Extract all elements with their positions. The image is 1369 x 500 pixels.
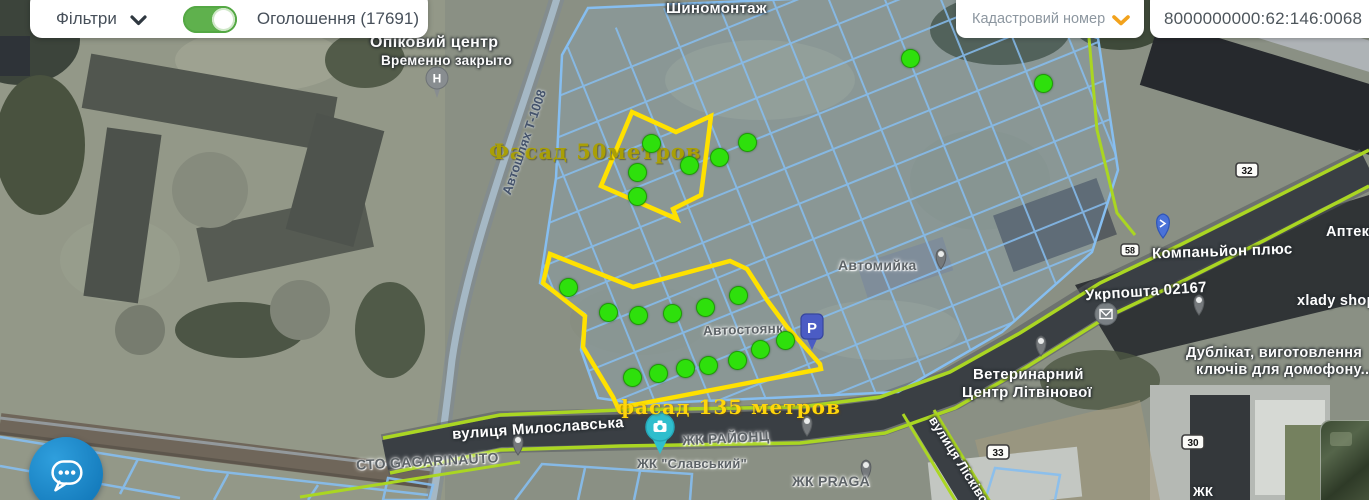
cadastral-number-field[interactable]: 8000000000:62:146:0068	[1150, 0, 1369, 38]
label-zhk-slavskyi: ЖК "Славський"	[637, 457, 747, 472]
svg-text:30: 30	[1187, 438, 1199, 449]
road-shield-30: 30	[1182, 435, 1204, 449]
svg-text:33: 33	[992, 448, 1004, 459]
label-tire-service: Шиномонтаж	[666, 0, 767, 17]
filters-button[interactable]: Фільтри	[56, 9, 117, 29]
announcement-marker[interactable]	[680, 156, 699, 175]
announcement-marker[interactable]	[628, 163, 647, 182]
announcement-marker[interactable]	[559, 278, 578, 297]
announcement-marker[interactable]	[1034, 74, 1053, 93]
announcement-marker[interactable]	[628, 187, 647, 206]
announcements-toggle[interactable]	[183, 6, 237, 33]
label-xlady-shop: xlady shop	[1297, 293, 1369, 310]
cadastral-field-label: Кадастровий номер	[972, 11, 1105, 27]
label-zhk-praga: ЖК PRAGA	[792, 473, 870, 489]
cadastral-number-value: 8000000000:62:146:0068	[1164, 9, 1362, 29]
chevron-down-icon[interactable]	[130, 15, 147, 26]
announcement-marker[interactable]	[599, 303, 618, 322]
announcement-marker[interactable]	[738, 133, 757, 152]
announcement-marker[interactable]	[623, 368, 642, 387]
announcement-marker[interactable]	[649, 364, 668, 383]
label-vet-center-2: Центр Літвінової	[962, 384, 1092, 401]
announcement-marker[interactable]	[710, 148, 729, 167]
map-canvas[interactable]: H P	[0, 0, 1369, 500]
filter-bar: Фільтри Оголошення (17691)	[30, 0, 428, 38]
chat-bubble-icon	[43, 451, 89, 497]
mail-pin	[1095, 303, 1117, 325]
label-vet-center-1: Ветеринарний	[973, 366, 1084, 383]
toggle-knob	[212, 8, 235, 31]
label-key-duplicate-1: Дублікат, виготовлення	[1186, 345, 1362, 362]
svg-text:58: 58	[1125, 246, 1135, 256]
road-shield-58: 58	[1121, 244, 1139, 256]
road-shield-33: 33	[987, 445, 1009, 459]
hospital-letter: H	[433, 72, 442, 86]
announcement-marker[interactable]	[676, 359, 695, 378]
announcement-marker[interactable]	[751, 340, 770, 359]
parking-letter: P	[807, 320, 817, 337]
minimap-inset[interactable]	[1320, 420, 1369, 500]
announcement-marker[interactable]	[728, 351, 747, 370]
road-shield-32: 32	[1236, 163, 1258, 177]
announcement-marker[interactable]	[729, 286, 748, 305]
announcement-marker[interactable]	[696, 298, 715, 317]
chevron-down-orange-icon	[1112, 15, 1130, 26]
announcement-marker[interactable]	[629, 306, 648, 325]
announcement-marker[interactable]	[642, 134, 661, 153]
announcements-count-label: Оголошення (17691)	[257, 9, 419, 29]
label-facade-135m: фасад 135 метров	[616, 396, 841, 419]
announcement-marker[interactable]	[901, 49, 920, 68]
label-pharmacy: Аптека	[1326, 224, 1369, 241]
label-zhk-corner: ЖК	[1193, 485, 1213, 500]
announcement-marker[interactable]	[699, 356, 718, 375]
announcement-marker[interactable]	[663, 304, 682, 323]
label-key-duplicate-2: ключів для домофону...	[1196, 362, 1369, 379]
announcement-marker[interactable]	[776, 331, 795, 350]
label-car-wash: Автомийка	[838, 257, 917, 273]
label-temporarily-closed: Временно закрыто	[381, 53, 512, 69]
label-parking-lot: Автостоянк	[703, 321, 784, 339]
svg-text:32: 32	[1241, 166, 1253, 177]
cadastral-number-dropdown[interactable]: Кадастровий номер	[956, 0, 1144, 38]
